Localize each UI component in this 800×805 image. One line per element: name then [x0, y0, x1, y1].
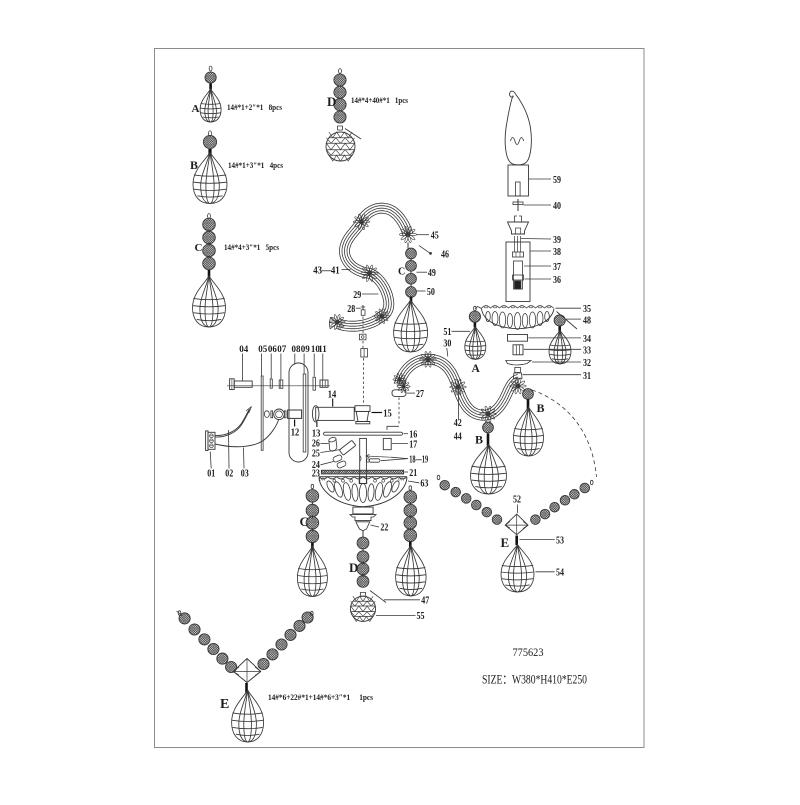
svg-text:38: 38 — [553, 247, 561, 258]
svg-text:17: 17 — [409, 439, 417, 450]
svg-text:54: 54 — [556, 568, 564, 579]
svg-text:45: 45 — [431, 231, 439, 242]
svg-text:D: D — [349, 560, 358, 575]
svg-text:B: B — [475, 433, 483, 447]
svg-text:15: 15 — [383, 408, 392, 419]
svg-text:43—41: 43—41 — [313, 265, 340, 276]
svg-text:52: 52 — [513, 495, 521, 506]
svg-text:36: 36 — [553, 275, 561, 286]
svg-text:46: 46 — [441, 249, 449, 260]
svg-text:775623: 775623 — [513, 645, 544, 659]
svg-text:39: 39 — [553, 235, 561, 246]
svg-text:37: 37 — [553, 262, 561, 273]
svg-text:34: 34 — [583, 334, 591, 345]
svg-text:07: 07 — [277, 344, 287, 354]
svg-text:A: A — [472, 363, 481, 375]
svg-text:14#*1+2″*1 8pcs: 14#*1+2″*1 8pcs — [227, 103, 282, 112]
svg-text:50: 50 — [427, 287, 435, 298]
svg-text:30: 30 — [443, 339, 451, 350]
svg-text:28: 28 — [347, 304, 355, 315]
svg-text:02: 02 — [225, 469, 233, 480]
svg-text:44: 44 — [454, 431, 462, 442]
svg-text:E: E — [501, 535, 510, 550]
svg-text:18—19: 18—19 — [409, 454, 428, 465]
svg-text:C: C — [195, 242, 203, 254]
svg-text:31: 31 — [583, 371, 591, 382]
svg-text:08: 08 — [292, 344, 302, 354]
svg-text:SIZE：W380*H410*E250: SIZE：W380*H410*E250 — [482, 673, 587, 687]
svg-text:59: 59 — [553, 175, 561, 186]
svg-text:55: 55 — [417, 611, 425, 622]
svg-text:05: 05 — [258, 344, 268, 354]
svg-text:49: 49 — [428, 268, 436, 279]
svg-text:12: 12 — [291, 428, 300, 439]
svg-text:D: D — [327, 94, 336, 109]
svg-text:35: 35 — [583, 304, 591, 315]
svg-text:14#*4+40#*1 1pcs: 14#*4+40#*1 1pcs — [351, 96, 408, 105]
svg-text:53: 53 — [556, 535, 564, 546]
svg-text:14#*4+3″*1 5pcs: 14#*4+3″*1 5pcs — [224, 243, 279, 252]
svg-text:01: 01 — [207, 469, 215, 480]
svg-text:27: 27 — [416, 389, 424, 400]
svg-text:29: 29 — [353, 290, 361, 301]
svg-text:21: 21 — [409, 468, 417, 479]
svg-text:B: B — [190, 158, 198, 172]
svg-text:25: 25 — [312, 448, 320, 459]
svg-text:63: 63 — [420, 479, 428, 490]
svg-text:22: 22 — [380, 523, 388, 534]
svg-text:03: 03 — [241, 469, 249, 480]
svg-text:06: 06 — [268, 344, 278, 354]
svg-text:C: C — [300, 514, 309, 529]
svg-text:C: C — [398, 267, 405, 278]
svg-text:33: 33 — [583, 345, 591, 356]
svg-text:E: E — [220, 697, 229, 712]
svg-text:51: 51 — [443, 327, 451, 338]
svg-text:11: 11 — [318, 344, 327, 354]
svg-text:47: 47 — [421, 596, 429, 607]
svg-text:A: A — [192, 103, 200, 115]
svg-text:B: B — [537, 401, 545, 415]
svg-text:09: 09 — [301, 344, 311, 354]
svg-text:04: 04 — [239, 344, 249, 354]
svg-text:48: 48 — [583, 316, 591, 327]
svg-text:14#*6+22#*1+14#*6+3″*1 1pc: 14#*6+22#*1+14#*6+3″*1 1pcs — [268, 693, 373, 702]
svg-text:42: 42 — [454, 418, 462, 429]
svg-text:14#*1+3″*1 4pcs: 14#*1+3″*1 4pcs — [228, 161, 283, 170]
svg-text:32: 32 — [583, 358, 591, 369]
svg-text:40: 40 — [553, 201, 561, 212]
